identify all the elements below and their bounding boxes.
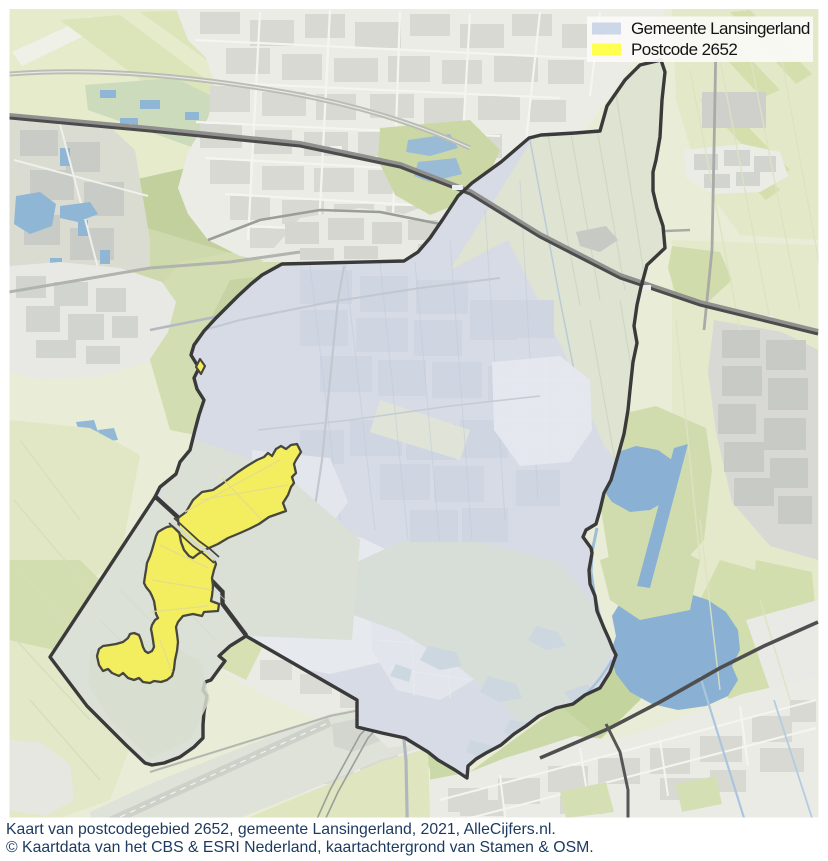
svg-text:Gemeente Lansingerland: Gemeente Lansingerland (631, 19, 810, 38)
svg-text:Postcode 2652: Postcode 2652 (631, 40, 737, 59)
